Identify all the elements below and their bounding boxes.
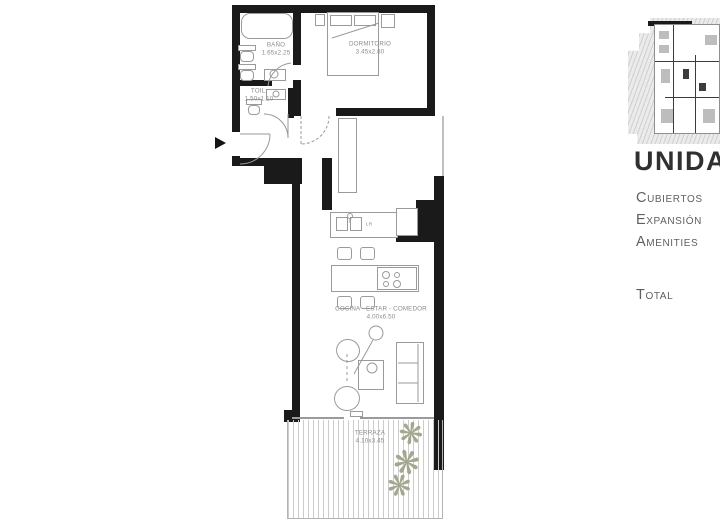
room-dims: 4.10x3.45: [356, 436, 385, 443]
bidet-bowl: [240, 70, 254, 81]
pillow: [330, 15, 352, 26]
refrigerator: [396, 208, 418, 236]
wardrobe: [338, 118, 357, 193]
pillow: [354, 15, 376, 26]
overview-furniture: [661, 69, 670, 83]
legend-item-amenities: Amenities: [636, 234, 698, 250]
overview-wall: [665, 97, 719, 98]
bathroom-sink: [264, 69, 286, 81]
room-dims: 3.45x2.80: [356, 47, 385, 54]
room-dims: 1.50x1.10: [245, 94, 274, 101]
room-label-toilette: TOIL. 1.50x1.10: [236, 87, 281, 102]
unit-title: UNIDAD: [634, 146, 720, 177]
overview-furniture: [661, 109, 673, 123]
bathtub: [241, 13, 293, 39]
unit-overview-thumbnail: [628, 18, 720, 144]
floorplan-sheet: ❋ ❋ ❋ BAÑO 1.: [0, 0, 720, 532]
wall-segment: [293, 5, 301, 65]
coffee-table: [358, 360, 384, 390]
room-name: DORMITORIO: [349, 40, 391, 47]
overview-wall: [699, 83, 706, 91]
room-label-terraza: TERRAZA 4.10x3.45: [345, 429, 395, 444]
room-name: BAÑO: [267, 41, 285, 48]
sink-basin: [350, 217, 362, 231]
legend-item-cubiertos: Cubiertos: [636, 190, 703, 206]
room-name: COCINA - ESTAR - COMEDOR: [335, 305, 427, 312]
entry-arrow-icon: [215, 137, 226, 149]
wall-segment: [396, 236, 434, 242]
chair: [337, 247, 352, 260]
overview-furniture: [705, 35, 717, 45]
wall-segment: [427, 5, 435, 116]
terrace-door-step: [350, 411, 363, 417]
room-name: TERRAZA: [355, 429, 385, 436]
overview-wall: [683, 69, 689, 79]
room-dims: 4.00x6.50: [367, 312, 396, 319]
legend-item-expansion: Expansión: [636, 212, 702, 228]
overview-plan-area: [654, 24, 720, 134]
room-label-bano: BAÑO 1.65x2.25: [257, 41, 294, 56]
appliance-label-lr: LR: [364, 222, 374, 228]
wall-segment: [336, 108, 435, 116]
wall-segment: [293, 80, 301, 116]
nightstand: [315, 14, 325, 26]
chair: [360, 247, 375, 260]
room-dims: 1.65x2.25: [262, 48, 291, 55]
wall-segment: [288, 88, 294, 118]
room-label-dormitorio: DORMITORIO 3.45x2.80: [337, 40, 403, 55]
legend-item-total: Total: [636, 287, 673, 303]
room-name: TOIL.: [251, 87, 267, 94]
room-label-cocina: COCINA - ESTAR - COMEDOR 4.00x6.50: [335, 305, 427, 320]
toilette-toilet-bowl: [248, 105, 260, 115]
appliance-label: LR: [366, 222, 373, 227]
cooktop: [377, 267, 417, 290]
overview-furniture: [659, 45, 669, 53]
sink-basin: [336, 217, 348, 231]
overview-furniture: [703, 109, 715, 123]
wall-segment: [292, 176, 300, 422]
overview-wall: [695, 55, 696, 133]
nightstand: [381, 14, 395, 28]
window-line: [442, 116, 444, 176]
overview-wall: [655, 61, 719, 62]
wall-segment: [322, 158, 332, 210]
sofa: [396, 342, 424, 404]
overview-furniture: [659, 31, 669, 39]
toilet-bowl: [240, 51, 254, 62]
overview-wall: [673, 25, 674, 133]
wall-segment: [416, 200, 434, 240]
